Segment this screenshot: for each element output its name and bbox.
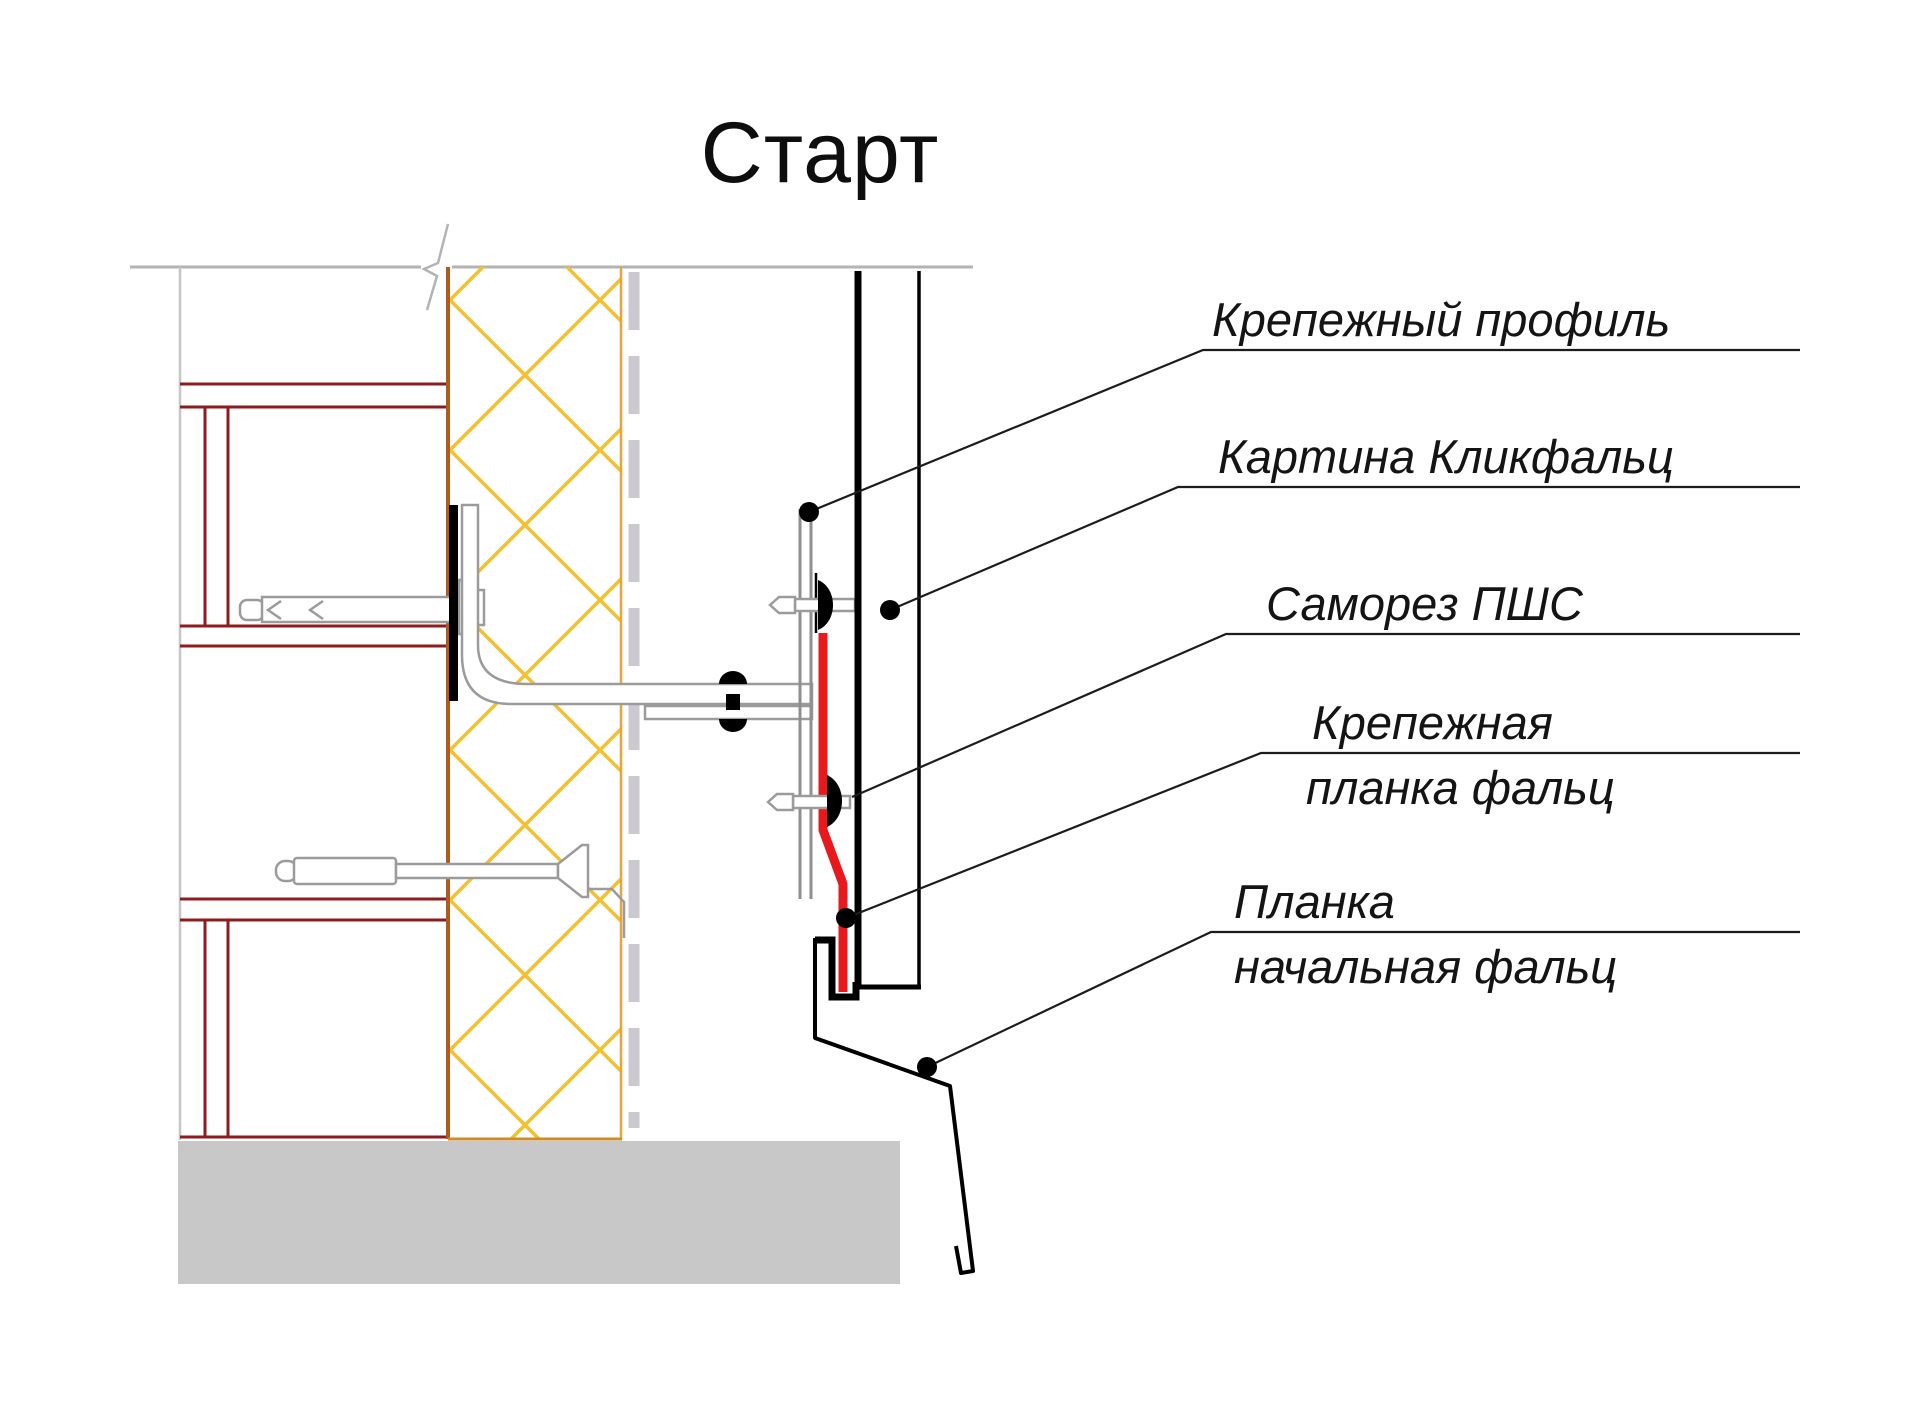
diagram-page: Старт Крепежный профиль Картина Кликфаль… xyxy=(0,0,1920,1403)
wall-frame xyxy=(180,384,447,1137)
callout-starting-strip-line2: начальная фальц xyxy=(1234,941,1617,993)
page-title: Старт xyxy=(560,104,1080,203)
screw-lower xyxy=(768,775,850,827)
callout-fastening-strip-line1: Крепежная xyxy=(1312,697,1553,749)
break-mark xyxy=(424,224,448,310)
callout-self-tapping-screw: Саморез ПШС xyxy=(1266,578,1583,630)
callout-click-seam-panel: Картина Кликфальц xyxy=(1218,431,1674,483)
click-seam-panel xyxy=(855,271,921,989)
section-drawing xyxy=(0,0,1920,1403)
foundation-block xyxy=(178,1141,900,1284)
rivet-top xyxy=(719,671,747,684)
callout-starting-strip-line1: Планка xyxy=(1234,876,1395,928)
rivet-bottom xyxy=(719,719,747,732)
callout-fastening-strip-line2: планка фальц xyxy=(1306,762,1615,814)
callout-fastening-profile: Крепежный профиль xyxy=(1212,294,1670,346)
